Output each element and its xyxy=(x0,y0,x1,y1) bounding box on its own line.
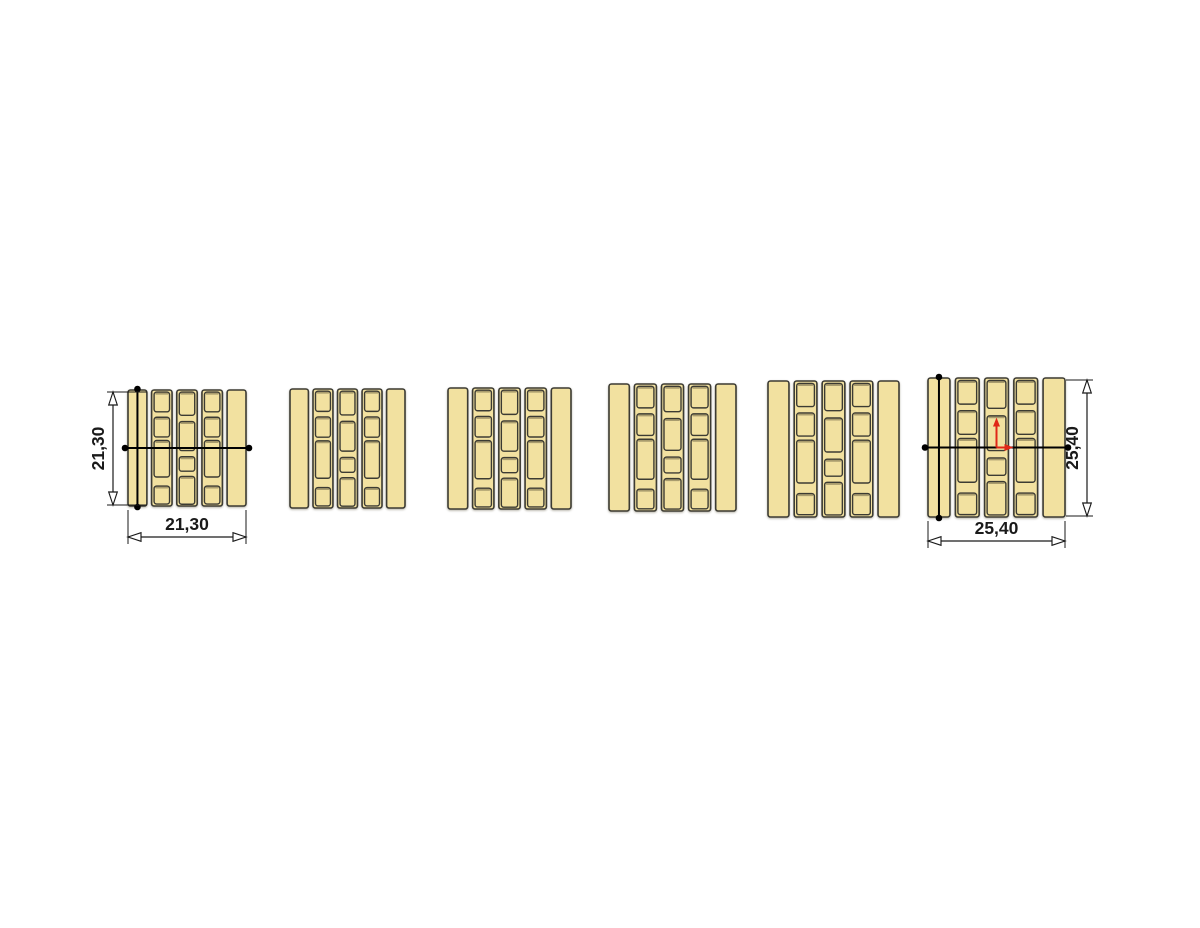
core-hole xyxy=(501,390,517,414)
core-hole xyxy=(316,441,331,478)
core-hole xyxy=(316,488,331,506)
core-hole xyxy=(637,439,654,479)
core-hole xyxy=(528,488,544,507)
section-end-dot xyxy=(122,445,129,452)
core-hole xyxy=(475,441,491,479)
dimension-arrowhead xyxy=(928,537,941,546)
technical-drawing-canvas: 21,3021,3025,4025,40 xyxy=(0,0,1200,928)
core-hole xyxy=(365,417,380,437)
core-hole xyxy=(691,414,708,436)
dimension-arrowhead xyxy=(128,533,141,542)
core-hole xyxy=(987,381,1006,409)
core-hole xyxy=(501,478,517,507)
block-3 xyxy=(448,388,571,509)
core-hole xyxy=(664,386,681,411)
width-dimension-label: 21,30 xyxy=(165,514,209,534)
core-hole xyxy=(1016,381,1035,405)
core-hole xyxy=(179,392,194,415)
core-hole xyxy=(154,440,169,477)
core-hole xyxy=(691,386,708,408)
core-hole xyxy=(204,440,219,477)
core-hole xyxy=(825,482,843,515)
core-hole xyxy=(528,441,544,479)
section-end-dot xyxy=(246,445,253,452)
dimension-arrowhead xyxy=(1083,503,1092,516)
core-hole xyxy=(179,422,194,451)
core-hole xyxy=(987,482,1006,515)
web-bar-right xyxy=(878,381,899,517)
section-end-dot xyxy=(134,386,141,393)
section-end-dot xyxy=(936,515,943,522)
height-dimension-label: 25,40 xyxy=(1062,426,1082,470)
core-hole xyxy=(316,417,331,437)
height-dimension-label: 21,30 xyxy=(88,426,108,470)
core-hole xyxy=(825,459,843,476)
core-hole xyxy=(528,416,544,437)
web-bar-left xyxy=(609,384,629,511)
core-hole xyxy=(204,417,219,437)
core-hole xyxy=(154,392,169,412)
core-hole xyxy=(340,421,355,451)
core-hole xyxy=(691,489,708,509)
core-hole xyxy=(365,488,380,506)
core-hole xyxy=(475,416,491,437)
brick-formats-drawing: 21,3021,3025,4025,40 xyxy=(0,0,1200,928)
section-end-dot xyxy=(936,374,943,381)
core-hole xyxy=(853,383,871,406)
core-hole xyxy=(501,421,517,451)
core-hole xyxy=(204,392,219,412)
block-6: 25,4025,40 xyxy=(922,374,1093,548)
core-hole xyxy=(664,419,681,451)
block-4 xyxy=(609,384,736,511)
core-hole xyxy=(797,413,815,436)
core-hole xyxy=(853,413,871,436)
section-end-dot xyxy=(922,444,929,451)
core-hole xyxy=(958,411,977,435)
dimension-arrowhead xyxy=(1083,380,1092,393)
core-hole xyxy=(987,458,1006,475)
core-hole xyxy=(340,391,355,415)
core-hole xyxy=(475,390,491,411)
dimension-arrowhead xyxy=(233,533,246,542)
block-2 xyxy=(290,389,405,508)
core-hole xyxy=(958,381,977,405)
core-hole xyxy=(825,383,843,410)
core-hole xyxy=(340,478,355,507)
web-bar-left xyxy=(448,388,468,509)
core-hole xyxy=(365,441,380,478)
width-dimension-label: 25,40 xyxy=(975,518,1019,538)
core-hole xyxy=(797,494,815,515)
web-bar-right xyxy=(387,389,405,508)
core-hole xyxy=(528,390,544,411)
core-hole xyxy=(825,418,843,452)
core-hole xyxy=(1016,493,1035,515)
web-bar-left xyxy=(290,389,308,508)
core-hole xyxy=(664,479,681,509)
dimension-arrowhead xyxy=(109,492,118,505)
core-hole xyxy=(637,414,654,436)
core-hole xyxy=(853,440,871,483)
core-hole xyxy=(1016,438,1035,482)
core-hole xyxy=(797,383,815,406)
dimension-arrowhead xyxy=(109,392,118,405)
core-hole xyxy=(179,476,194,504)
core-hole xyxy=(958,493,977,515)
core-hole xyxy=(797,440,815,483)
core-hole xyxy=(316,391,331,411)
core-hole xyxy=(475,488,491,507)
core-hole xyxy=(853,494,871,515)
core-hole xyxy=(204,486,219,504)
web-bar-right xyxy=(551,388,571,509)
web-bar-right xyxy=(716,384,736,511)
core-hole xyxy=(958,438,977,482)
core-hole xyxy=(154,417,169,437)
block-5 xyxy=(768,381,899,517)
web-bar-left xyxy=(768,381,789,517)
core-hole xyxy=(637,489,654,509)
core-hole xyxy=(1016,411,1035,435)
core-hole xyxy=(154,486,169,504)
core-hole xyxy=(365,391,380,411)
dimension-arrowhead xyxy=(1052,537,1065,546)
block-1: 21,3021,30 xyxy=(88,386,252,544)
core-hole xyxy=(691,439,708,479)
core-hole xyxy=(637,386,654,408)
